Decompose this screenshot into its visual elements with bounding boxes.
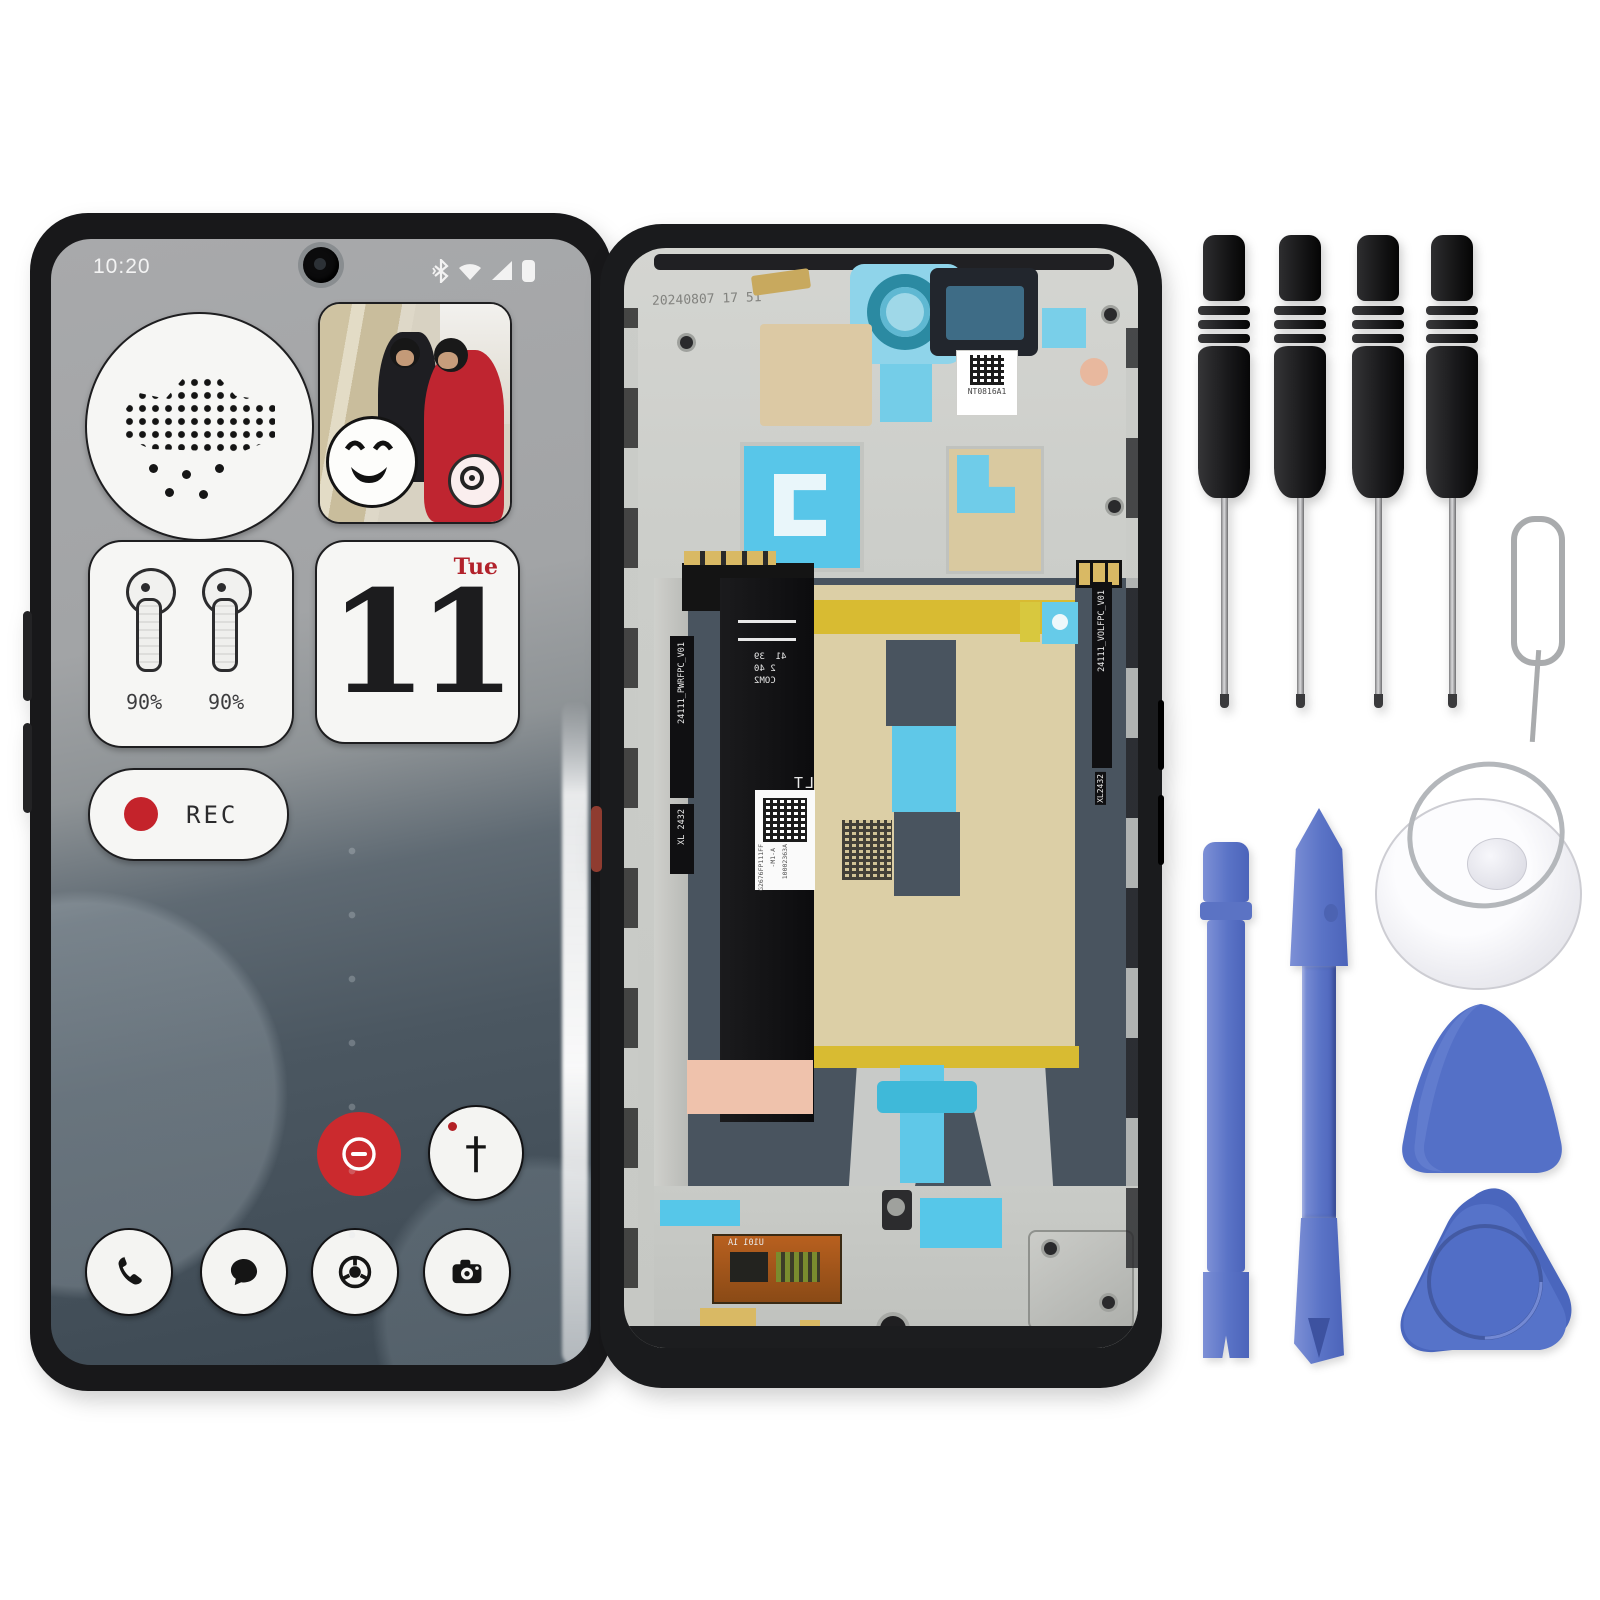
etched-date-text: 20240807 17 51 bbox=[652, 290, 762, 309]
flex-gold-teeth bbox=[684, 551, 776, 565]
chat-bubble-icon bbox=[225, 1253, 263, 1291]
decor-dots bbox=[347, 819, 357, 1239]
right-rail-clips bbox=[1126, 328, 1138, 1268]
power-flex-2: XL 2432 bbox=[670, 804, 694, 874]
flex-label-rev: -M1-A bbox=[769, 848, 777, 868]
calendar-widget[interactable]: Tue 11 bbox=[315, 540, 520, 744]
suction-ring-bead bbox=[1467, 838, 1527, 890]
gold-tape-bit bbox=[751, 268, 811, 296]
spudger-hole bbox=[1324, 904, 1338, 922]
flex-connector-label: COM2 bbox=[754, 676, 776, 686]
opening-pick-embossed bbox=[1386, 1182, 1584, 1368]
qr-label-text: NT0816A1 bbox=[957, 387, 1017, 396]
screwdriver-1 bbox=[1196, 235, 1252, 708]
screw bbox=[680, 336, 693, 349]
dagger-icon: † bbox=[465, 1128, 487, 1179]
metal-backplate: 20240807 17 51 NT0816A1 bbox=[624, 248, 1138, 1348]
opening-pick-plain bbox=[1385, 996, 1577, 1182]
pry-collar bbox=[1200, 902, 1252, 920]
screw bbox=[1104, 308, 1117, 321]
phone-icon bbox=[109, 1252, 149, 1292]
tape-bracket-glyph bbox=[774, 474, 826, 536]
rain-dot bbox=[182, 470, 191, 479]
screwdriver-4 bbox=[1424, 235, 1480, 708]
cyan-patch-bottom-left bbox=[660, 1200, 740, 1226]
calendar-day: 11 bbox=[317, 560, 518, 726]
sim-eject-pin bbox=[1509, 516, 1557, 748]
left-earbud-battery: 90% bbox=[126, 690, 162, 714]
battery-icon bbox=[522, 260, 535, 282]
power-flex-part: 24111_PWRFPC_V01 bbox=[677, 642, 687, 724]
gold-pad-bottom bbox=[700, 1308, 756, 1326]
phone-front: 10:20 bbox=[30, 213, 612, 1391]
laughing-doodle-sticker bbox=[326, 416, 418, 508]
flex-white-line2 bbox=[738, 638, 796, 641]
pry-body bbox=[1207, 920, 1245, 1272]
volume-down-button bbox=[23, 723, 32, 813]
assembly-right-button-cutout2 bbox=[1158, 795, 1164, 865]
flex-connector-pins-b: 2 40 bbox=[754, 664, 776, 674]
camera-icon bbox=[447, 1252, 487, 1292]
flex-white-label: G2676FP111FF -M1-A 10002363A bbox=[755, 790, 815, 890]
blue-l-tape bbox=[957, 455, 1015, 513]
bottom-screw-post bbox=[887, 1198, 905, 1216]
screen-reflection bbox=[562, 701, 588, 1365]
flex-white-line bbox=[738, 620, 796, 623]
status-time: 10:20 bbox=[93, 255, 151, 279]
flex-label-qr bbox=[763, 798, 807, 842]
recorder-widget[interactable]: REC bbox=[88, 768, 289, 861]
dot-matrix-cloud-icon bbox=[123, 376, 275, 452]
record-stop-icon bbox=[338, 1133, 380, 1175]
camera-lens-opening bbox=[880, 287, 930, 337]
rain-dot bbox=[149, 464, 158, 473]
ic-pads bbox=[776, 1252, 820, 1282]
volume-flex-part: 24111_VOLFPC_V01 bbox=[1097, 590, 1107, 672]
status-icons bbox=[432, 259, 535, 283]
phone-back-assembly: 20240807 17 51 NT0816A1 bbox=[600, 224, 1162, 1388]
rain-dot bbox=[199, 490, 208, 499]
blue-tape-bit-top-right bbox=[1042, 308, 1086, 348]
left-earbud-icon bbox=[126, 568, 176, 672]
yellow-tape-bottom bbox=[810, 1046, 1079, 1068]
person-1-face bbox=[396, 350, 414, 366]
shield-can bbox=[1028, 1230, 1134, 1330]
spudger-top bbox=[1290, 808, 1348, 966]
cyan-strip-mid bbox=[892, 726, 956, 812]
rain-dot bbox=[215, 464, 224, 473]
earbuds-widget[interactable]: 90% 90% bbox=[88, 540, 294, 748]
camera-doodle-sticker bbox=[448, 454, 502, 508]
notification-dot bbox=[448, 1122, 457, 1131]
camera-app-button[interactable] bbox=[423, 1228, 511, 1316]
weather-widget[interactable] bbox=[85, 312, 314, 541]
blue-tape-dot-sq bbox=[1042, 602, 1078, 644]
qr-code bbox=[970, 355, 1004, 385]
suction-cup bbox=[1375, 780, 1581, 990]
power-flex: 24111_PWRFPC_V01 bbox=[670, 636, 694, 798]
rain-dot bbox=[165, 488, 174, 497]
camera-gasket-tail bbox=[880, 364, 932, 422]
volume-flex: 24111_VOLFPC_V01 bbox=[1092, 582, 1112, 768]
printed-qr bbox=[842, 820, 892, 880]
earpiece-speaker-mesh bbox=[946, 286, 1024, 340]
cyan-patch bbox=[877, 1081, 977, 1113]
phone-app-button[interactable] bbox=[85, 1228, 173, 1316]
pry-cap bbox=[1203, 842, 1249, 902]
tan-sticker-top bbox=[760, 324, 872, 426]
spudger-tool bbox=[1286, 808, 1352, 1364]
slate-pad-1 bbox=[886, 640, 956, 726]
photo-widget[interactable] bbox=[318, 302, 512, 524]
cyan-patch-bottom-mid bbox=[920, 1198, 1002, 1248]
screwdriver-2 bbox=[1272, 235, 1328, 708]
peach-adhesive-dot bbox=[1080, 358, 1108, 386]
qr-serial-label: NT0816A1 bbox=[956, 350, 1018, 416]
screw bbox=[1044, 1242, 1057, 1255]
wifi-icon bbox=[458, 260, 482, 282]
glyph-shortcut-button[interactable]: † bbox=[428, 1105, 524, 1201]
bottom-frame-edge bbox=[624, 1326, 1138, 1348]
screwdriver-3 bbox=[1350, 235, 1406, 708]
browser-app-button[interactable] bbox=[311, 1228, 399, 1316]
left-rail-clips bbox=[624, 308, 638, 1288]
salmon-adhesive-pad bbox=[687, 1060, 813, 1114]
phone-screen: 10:20 bbox=[51, 239, 591, 1365]
tape-hole bbox=[1052, 614, 1068, 630]
pry-bar-tool bbox=[1200, 842, 1252, 1360]
slate-pad-2 bbox=[894, 812, 960, 896]
volume-flex-batch: XL2432 bbox=[1095, 772, 1106, 805]
assembly-side-button-red bbox=[591, 806, 602, 872]
volume-up-button bbox=[23, 611, 32, 701]
front-camera-punch-hole bbox=[303, 247, 339, 283]
pry-forked-tip bbox=[1203, 1272, 1249, 1358]
signal-icon bbox=[490, 260, 514, 282]
stop-record-button[interactable] bbox=[317, 1112, 401, 1196]
right-earbud-battery: 90% bbox=[208, 690, 244, 714]
screw bbox=[1108, 500, 1121, 513]
bottom-copper-flex: U101 1A bbox=[712, 1234, 842, 1304]
right-earbud-icon bbox=[202, 568, 252, 672]
browser-icon bbox=[335, 1252, 375, 1292]
person-2-face bbox=[438, 352, 458, 369]
power-flex-batch: XL 2432 bbox=[677, 809, 687, 845]
product-photo: 10:20 bbox=[0, 0, 1600, 1600]
record-dot-icon bbox=[124, 797, 158, 831]
flex-label-sn: 10002363A bbox=[781, 844, 789, 879]
flex-label-pn: G2676FP111FF bbox=[757, 844, 765, 891]
yellow-tape-bit bbox=[1020, 602, 1040, 642]
recorder-label: REC bbox=[186, 801, 238, 829]
screw bbox=[1102, 1296, 1115, 1309]
sim-pin-loop bbox=[1511, 516, 1565, 666]
spudger-body bbox=[1302, 966, 1336, 1218]
flex-connector-pins-a: 41 39 bbox=[754, 652, 787, 663]
bottom-flex-mark: U101 1A bbox=[728, 1238, 764, 1248]
messages-app-button[interactable] bbox=[200, 1228, 288, 1316]
assembly-right-button-cutout bbox=[1158, 700, 1164, 770]
bluetooth-icon bbox=[432, 259, 450, 283]
tan-component bbox=[946, 446, 1044, 574]
ic-chip bbox=[730, 1252, 768, 1282]
